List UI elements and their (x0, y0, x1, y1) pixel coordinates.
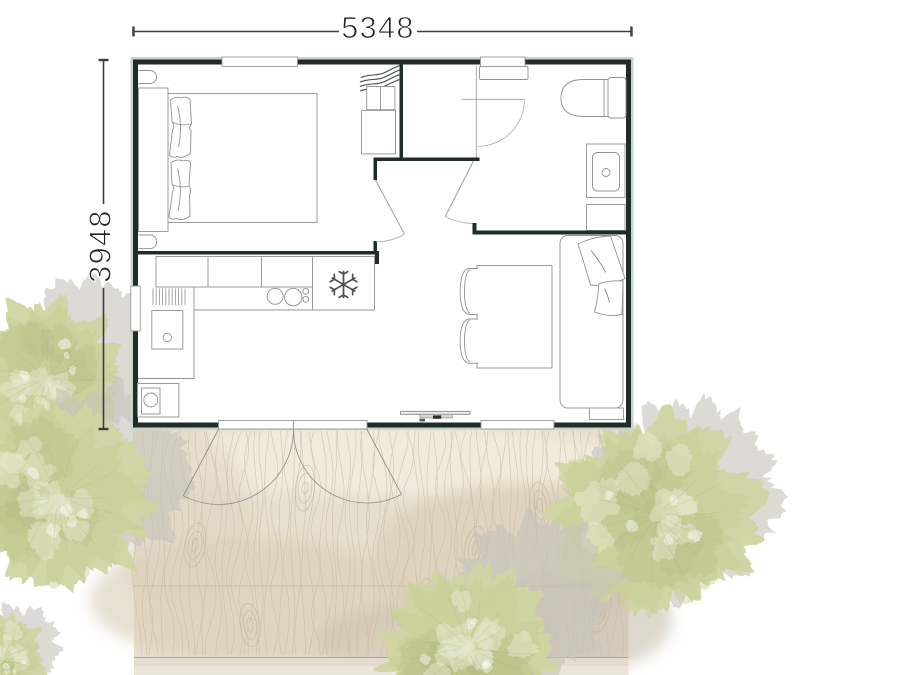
svg-text:3948: 3948 (84, 209, 118, 282)
svg-text:5348: 5348 (341, 11, 414, 45)
